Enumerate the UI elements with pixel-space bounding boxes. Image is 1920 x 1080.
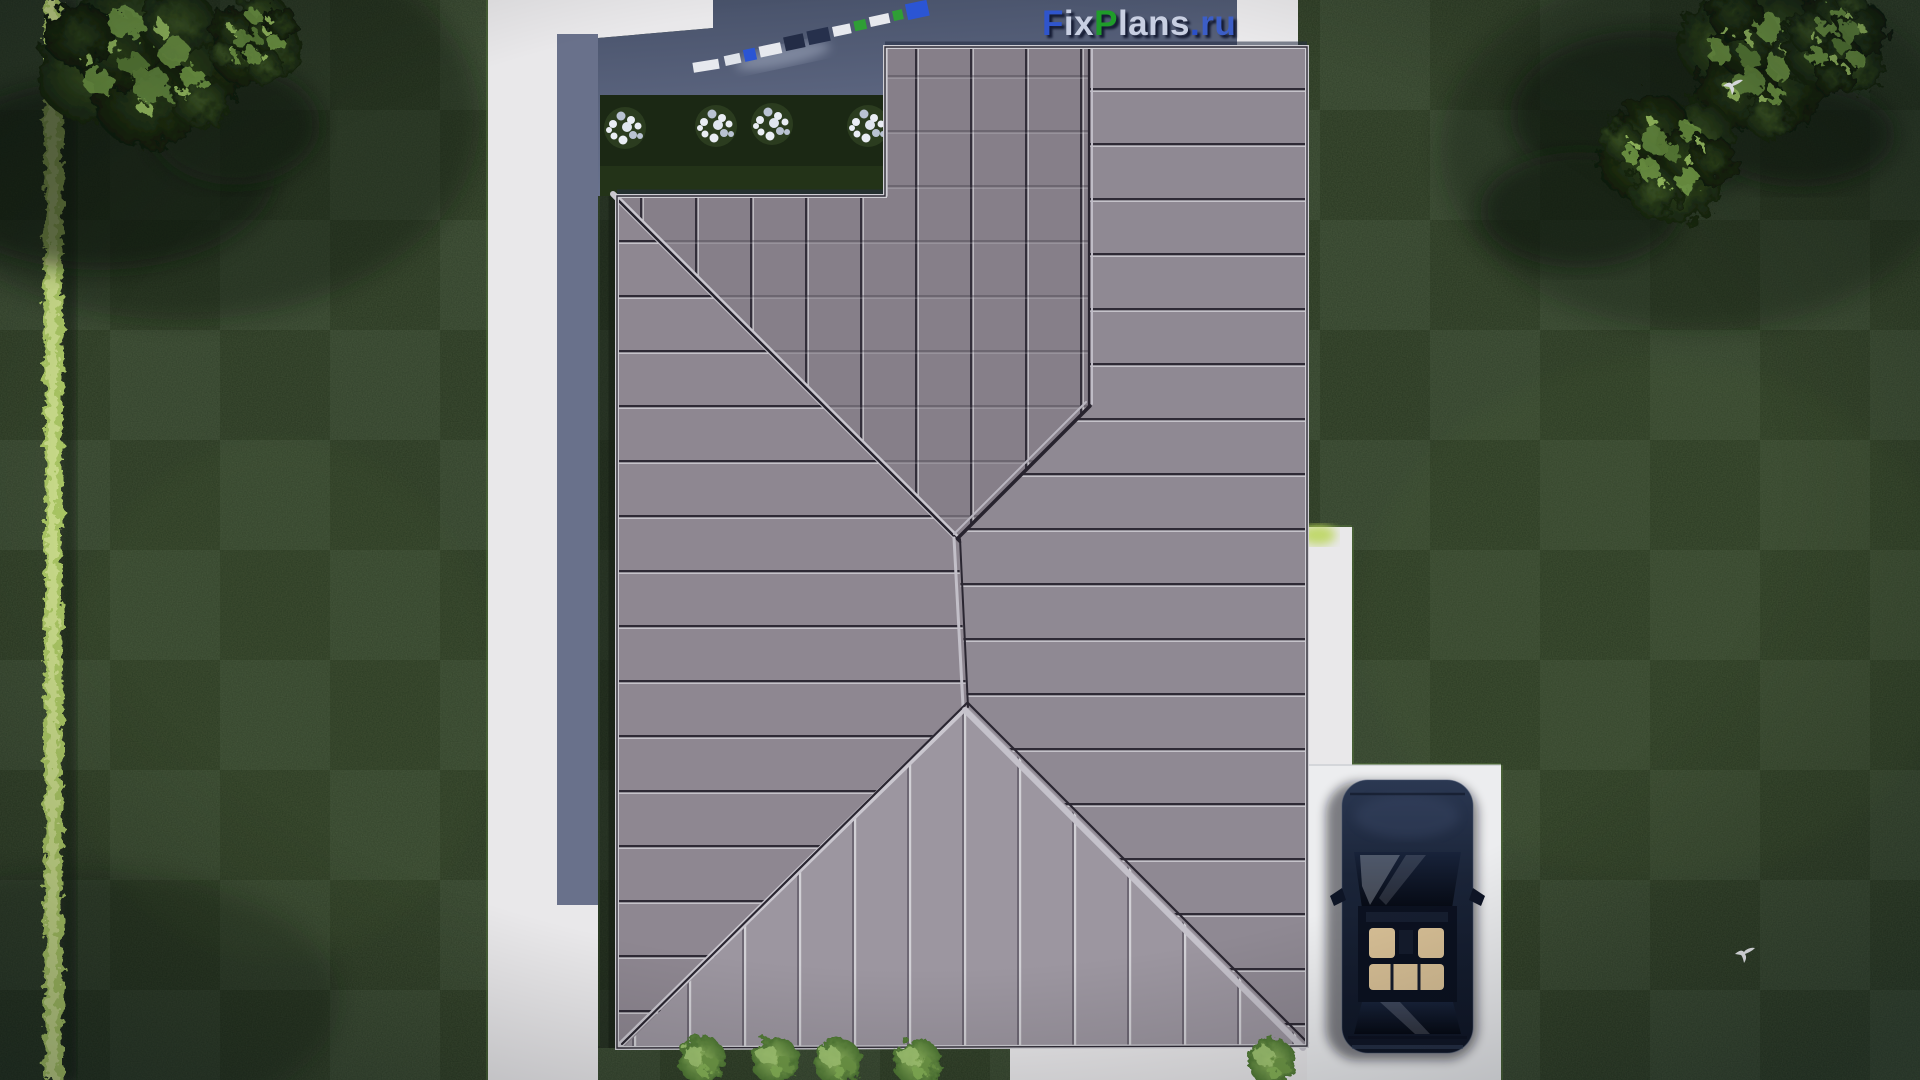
- watermark-fixplans: FixPlans.ru: [1042, 6, 1236, 41]
- watermark-segment: ix: [1064, 4, 1094, 43]
- site-plan-svg: [0, 0, 1920, 1080]
- watermark-segment: .: [1190, 4, 1200, 43]
- watermark-segment: lans: [1118, 4, 1190, 43]
- watermark-segment: F: [1042, 4, 1064, 43]
- watermark-segment: P: [1094, 4, 1118, 43]
- vignette-overlay: [0, 0, 1920, 1080]
- site-plan-scene: FixPlans.ru: [0, 0, 1920, 1080]
- watermark-segment: ru: [1200, 4, 1236, 43]
